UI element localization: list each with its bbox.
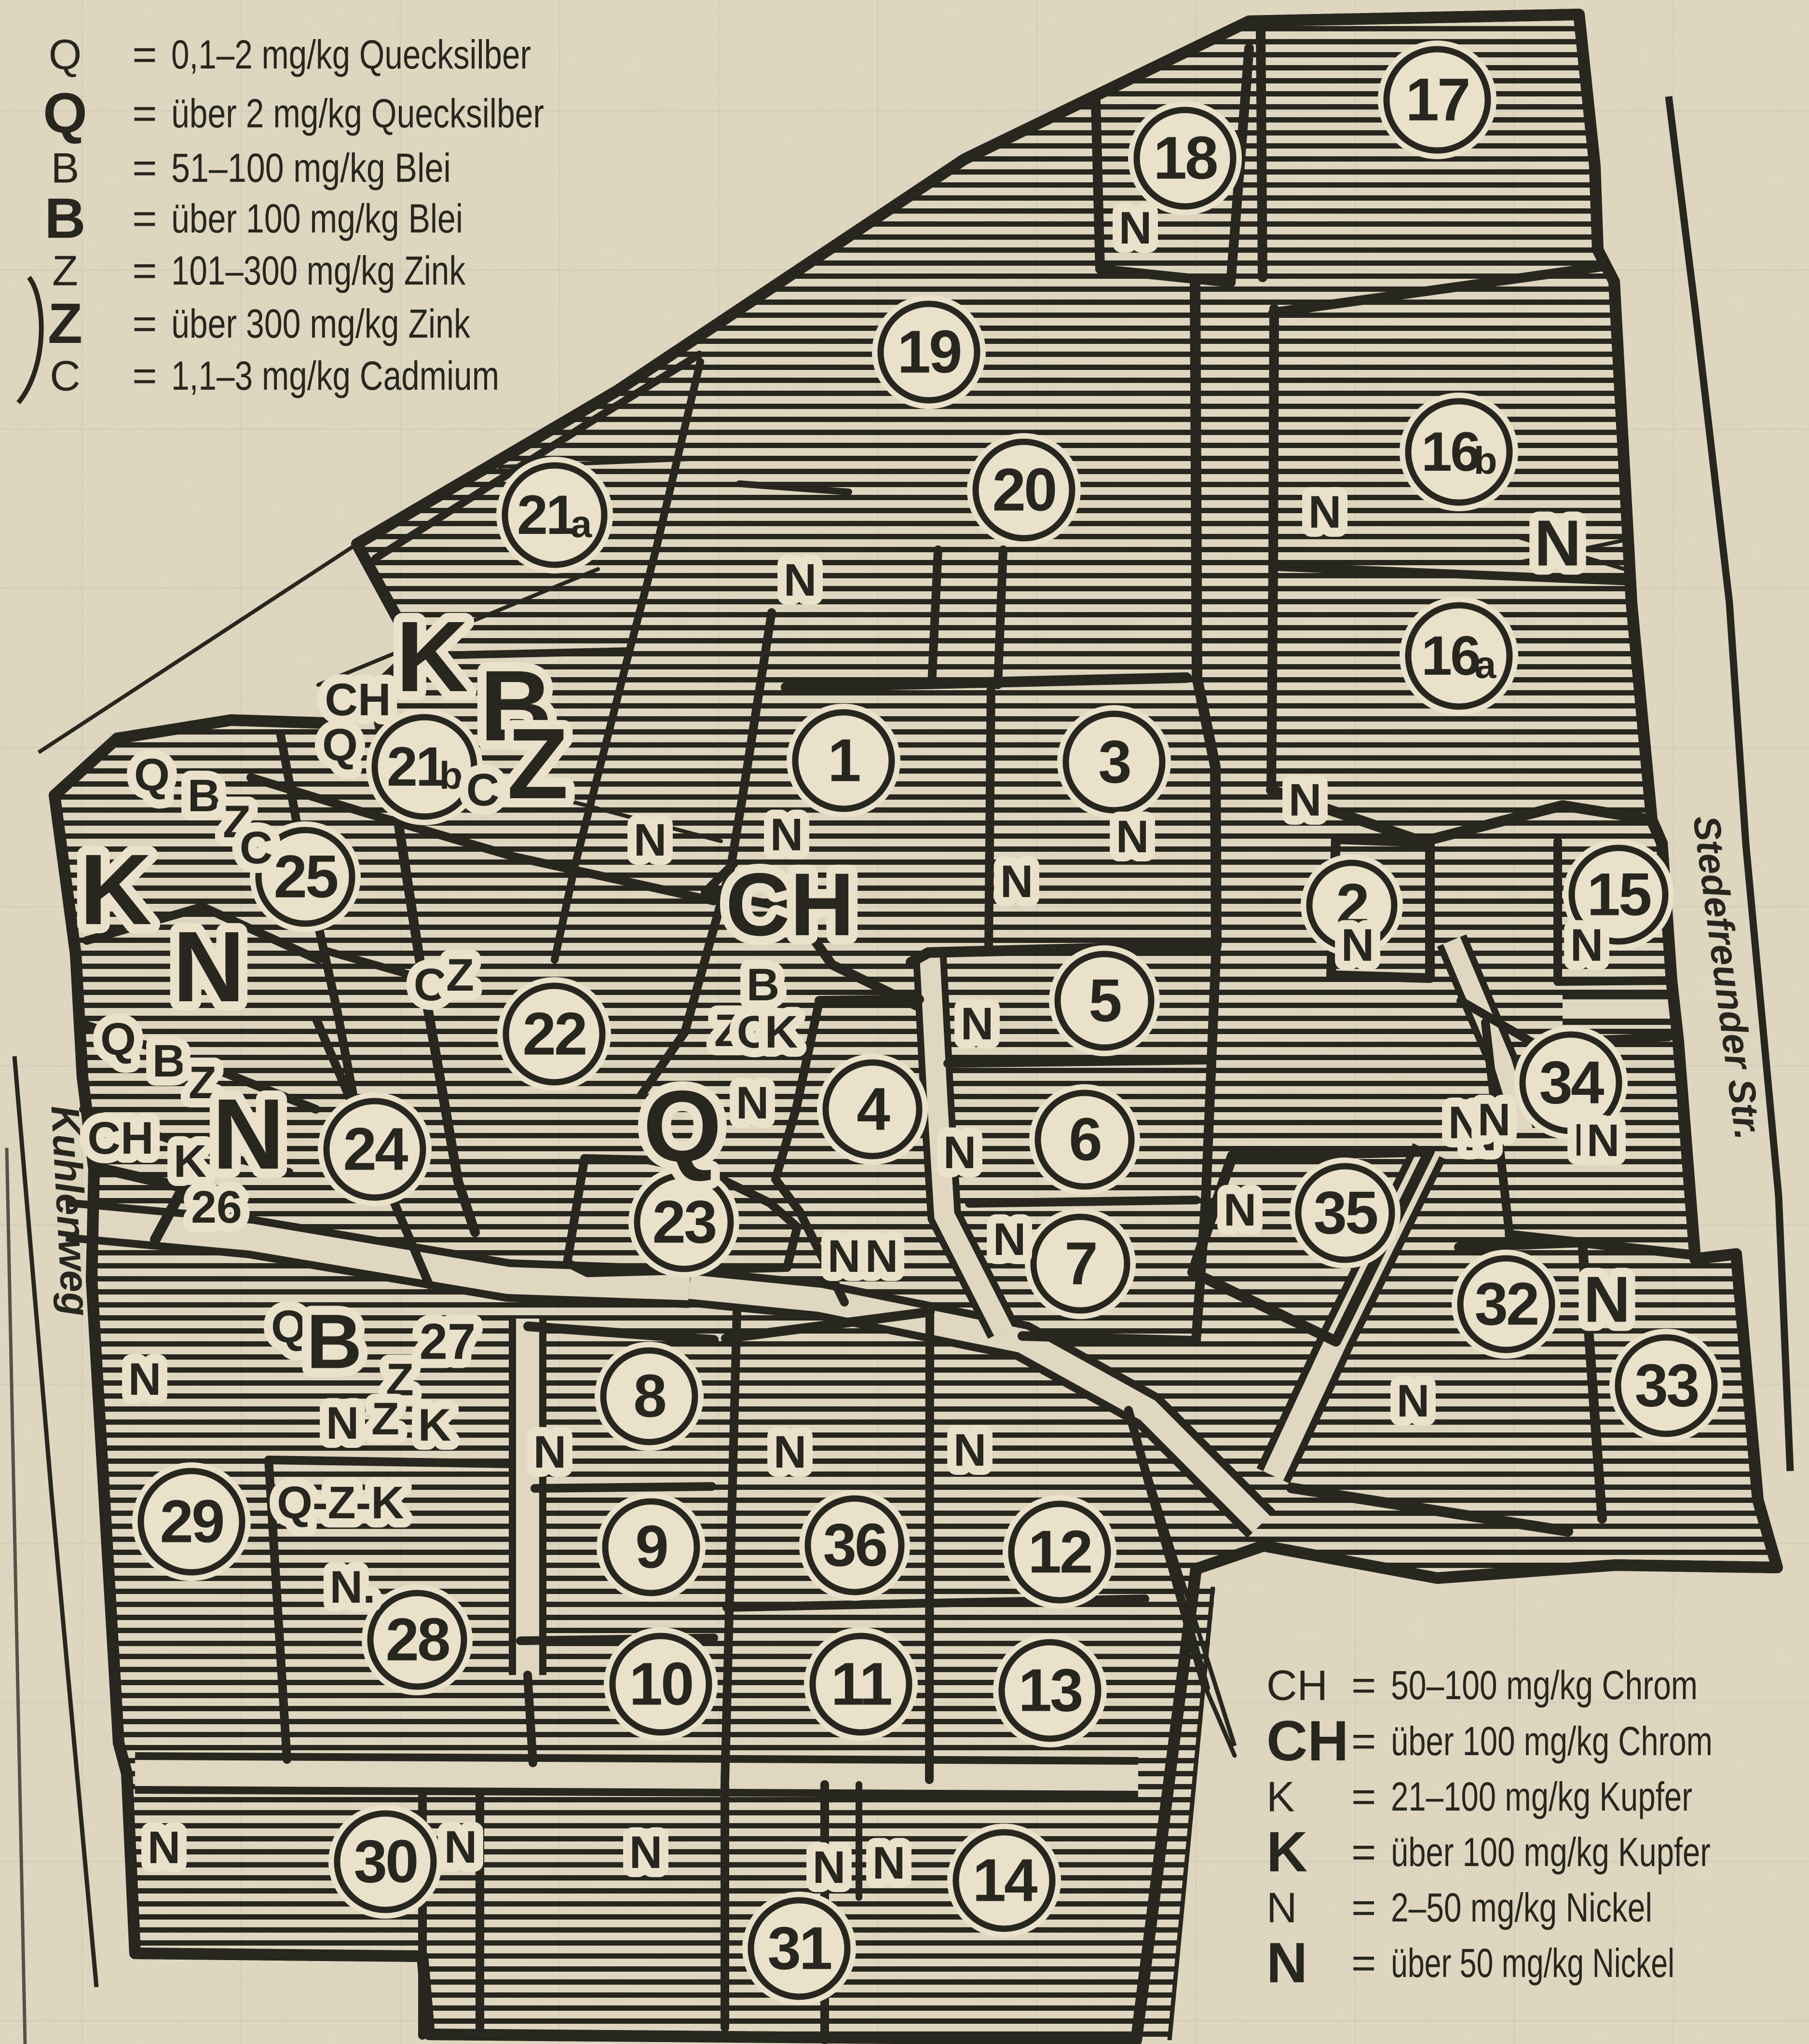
svg-text:N: N — [1570, 920, 1604, 971]
svg-text:C: C — [466, 764, 500, 816]
svg-text:N: N — [865, 1231, 898, 1282]
svg-text:C: C — [414, 959, 447, 1010]
svg-text:29: 29 — [160, 1488, 223, 1555]
svg-text:N: N — [993, 1214, 1026, 1265]
svg-text:B: B — [51, 144, 80, 192]
svg-text:N: N — [634, 815, 667, 866]
svg-text:=: = — [132, 31, 157, 79]
svg-text:Q: Q — [643, 1070, 721, 1183]
svg-text:51–100 mg/kg Blei: 51–100 mg/kg Blei — [171, 145, 451, 191]
svg-text:21–100 mg/kg Kupfer: 21–100 mg/kg Kupfer — [1391, 1774, 1692, 1819]
svg-text:B: B — [44, 187, 85, 250]
svg-text:N.: N. — [330, 1562, 376, 1613]
svg-text:N: N — [943, 1127, 977, 1178]
svg-text:N: N — [629, 1827, 663, 1878]
svg-text:N: N — [813, 1842, 846, 1893]
svg-text:13: 13 — [1018, 1657, 1081, 1724]
svg-text:32: 32 — [1474, 1271, 1537, 1338]
svg-text:N: N — [872, 1838, 906, 1889]
svg-text:36: 36 — [823, 1512, 886, 1579]
svg-text:N: N — [1224, 1185, 1257, 1236]
svg-text:1,1–3 mg/kg Cadmium: 1,1–3 mg/kg Cadmium — [171, 353, 499, 398]
svg-text:a: a — [571, 503, 592, 545]
svg-text:8: 8 — [633, 1363, 665, 1430]
svg-text:N: N — [1266, 1884, 1297, 1932]
svg-text:B: B — [747, 959, 780, 1010]
svg-text:26: 26 — [191, 1182, 242, 1233]
svg-text:N: N — [736, 1077, 769, 1129]
svg-text:N: N — [533, 1427, 567, 1478]
svg-text:N: N — [212, 1078, 285, 1190]
svg-text:22: 22 — [522, 1001, 585, 1068]
svg-text:34: 34 — [1539, 1049, 1604, 1117]
svg-text:Q-Z-K: Q-Z-K — [277, 1477, 404, 1528]
svg-text:CH: CH — [87, 1113, 153, 1164]
svg-text:N: N — [1478, 1094, 1511, 1145]
svg-text:Q: Q — [49, 31, 82, 79]
svg-text:CH: CH — [1266, 1709, 1348, 1773]
svg-text:25: 25 — [273, 844, 338, 911]
svg-text:9: 9 — [635, 1514, 667, 1581]
svg-text:b: b — [1474, 439, 1497, 482]
svg-text:=: = — [1351, 1939, 1376, 1987]
svg-text:=: = — [132, 144, 157, 192]
svg-text:0,1–2 mg/kg Quecksilber: 0,1–2 mg/kg Quecksilber — [171, 32, 531, 77]
svg-text:35: 35 — [1313, 1180, 1377, 1247]
svg-text:30: 30 — [354, 1828, 417, 1895]
svg-text:K: K — [418, 1400, 451, 1451]
svg-text:14: 14 — [972, 1847, 1037, 1914]
svg-text:21: 21 — [387, 736, 445, 798]
svg-text:N: N — [1289, 775, 1322, 826]
svg-text:5: 5 — [1088, 967, 1121, 1035]
svg-text:über 100 mg/kg Blei: über 100 mg/kg Blei — [171, 196, 463, 241]
svg-text:K: K — [1266, 1773, 1295, 1821]
svg-text:N: N — [1583, 1263, 1631, 1336]
svg-text:N: N — [828, 1231, 861, 1282]
svg-text:a: a — [1475, 643, 1496, 686]
svg-text:=: = — [132, 352, 157, 400]
svg-text:C: C — [50, 352, 81, 400]
svg-text:über 100 mg/kg Chrom: über 100 mg/kg Chrom — [1391, 1718, 1713, 1764]
svg-text:Q: Q — [43, 82, 87, 145]
svg-text:Q: Q — [271, 1301, 307, 1352]
svg-text:15: 15 — [1587, 861, 1651, 928]
svg-text:20: 20 — [992, 457, 1055, 524]
svg-text:N: N — [774, 1427, 807, 1478]
svg-text:11: 11 — [831, 1651, 892, 1718]
svg-text:N: N — [1000, 856, 1034, 907]
svg-text:24: 24 — [343, 1116, 408, 1183]
svg-text:=: = — [132, 300, 157, 348]
svg-text:B: B — [188, 770, 221, 821]
svg-text:3: 3 — [1098, 729, 1130, 796]
svg-text:=: = — [1351, 1884, 1376, 1932]
svg-text:=: = — [132, 247, 157, 295]
svg-text:101–300 mg/kg Zink: 101–300 mg/kg Zink — [171, 248, 466, 293]
svg-text:N: N — [148, 1822, 181, 1873]
svg-text:33: 33 — [1634, 1352, 1698, 1419]
svg-text:N: N — [128, 1354, 162, 1405]
svg-text:N: N — [444, 1822, 477, 1873]
svg-text:23: 23 — [652, 1189, 715, 1256]
svg-text:über 100 mg/kg Kupfer: über 100 mg/kg Kupfer — [1391, 1829, 1711, 1875]
svg-text:CH: CH — [1266, 1662, 1328, 1709]
svg-text:Q: Q — [322, 720, 358, 771]
svg-text:C: C — [240, 822, 273, 873]
svg-text:N: N — [173, 911, 245, 1023]
svg-text:1: 1 — [828, 727, 860, 794]
svg-text:18: 18 — [1153, 125, 1217, 192]
svg-text:N: N — [961, 998, 994, 1049]
svg-text:=: = — [1351, 1773, 1376, 1821]
svg-text:N: N — [1308, 487, 1342, 538]
svg-text:K: K — [1266, 1820, 1307, 1884]
svg-text:31: 31 — [767, 1915, 831, 1982]
svg-text:21: 21 — [517, 484, 575, 546]
svg-text:N: N — [1448, 1097, 1482, 1148]
svg-text:N: N — [1116, 811, 1149, 862]
svg-text:Z: Z — [371, 1393, 399, 1444]
svg-text:K: K — [396, 601, 468, 713]
svg-text:N: N — [784, 555, 817, 606]
svg-text:17: 17 — [1405, 67, 1469, 134]
svg-text:CH: CH — [725, 855, 854, 954]
svg-text:N: N — [1341, 920, 1374, 971]
svg-text:N: N — [1587, 1115, 1620, 1166]
svg-text:Z: Z — [48, 292, 82, 355]
svg-text:K: K — [80, 834, 152, 946]
svg-text:über 2 mg/kg Quecksilber: über 2 mg/kg Quecksilber — [171, 91, 544, 136]
svg-text:Z: Z — [507, 708, 568, 820]
svg-text:b: b — [439, 754, 463, 797]
svg-text:N: N — [770, 809, 803, 860]
svg-text:2–50 mg/kg Nickel: 2–50 mg/kg Nickel — [1391, 1885, 1652, 1930]
svg-text:50–100 mg/kg Chrom: 50–100 mg/kg Chrom — [1391, 1662, 1698, 1708]
svg-text:6: 6 — [1069, 1106, 1101, 1173]
svg-text:N: N — [1266, 1931, 1307, 1995]
svg-text:=: = — [1351, 1828, 1376, 1876]
svg-text:B: B — [306, 1298, 362, 1385]
svg-text:über 50 mg/kg Nickel: über 50 mg/kg Nickel — [1391, 1940, 1674, 1986]
svg-text:=: = — [1351, 1717, 1376, 1765]
svg-text:12: 12 — [1028, 1519, 1091, 1586]
svg-text:Q: Q — [134, 749, 170, 801]
svg-text:4: 4 — [857, 1076, 890, 1143]
svg-text:=: = — [132, 90, 157, 137]
svg-text:über 300 mg/kg Zink: über 300 mg/kg Zink — [171, 301, 471, 346]
svg-text:K: K — [765, 1007, 798, 1058]
svg-text:19: 19 — [897, 319, 960, 386]
svg-text:=: = — [1351, 1662, 1376, 1709]
svg-text:16: 16 — [1421, 625, 1479, 687]
svg-text:K: K — [174, 1136, 207, 1187]
svg-text:16: 16 — [1421, 421, 1479, 483]
svg-text:N: N — [1397, 1376, 1430, 1427]
svg-text:Z: Z — [52, 247, 78, 295]
svg-text:N: N — [953, 1425, 987, 1476]
svg-text:N: N — [326, 1398, 359, 1449]
svg-text:28: 28 — [385, 1607, 449, 1674]
svg-text:27: 27 — [420, 1314, 476, 1370]
svg-text:B: B — [152, 1036, 186, 1087]
svg-text:N: N — [1534, 507, 1581, 580]
svg-text:=: = — [132, 195, 157, 243]
svg-text:N: N — [1119, 203, 1152, 254]
svg-text:Q: Q — [100, 1014, 136, 1065]
svg-text:7: 7 — [1064, 1230, 1096, 1297]
svg-text:CH: CH — [325, 674, 391, 725]
svg-text:10: 10 — [629, 1651, 692, 1718]
svg-text:Z: Z — [446, 950, 474, 1001]
